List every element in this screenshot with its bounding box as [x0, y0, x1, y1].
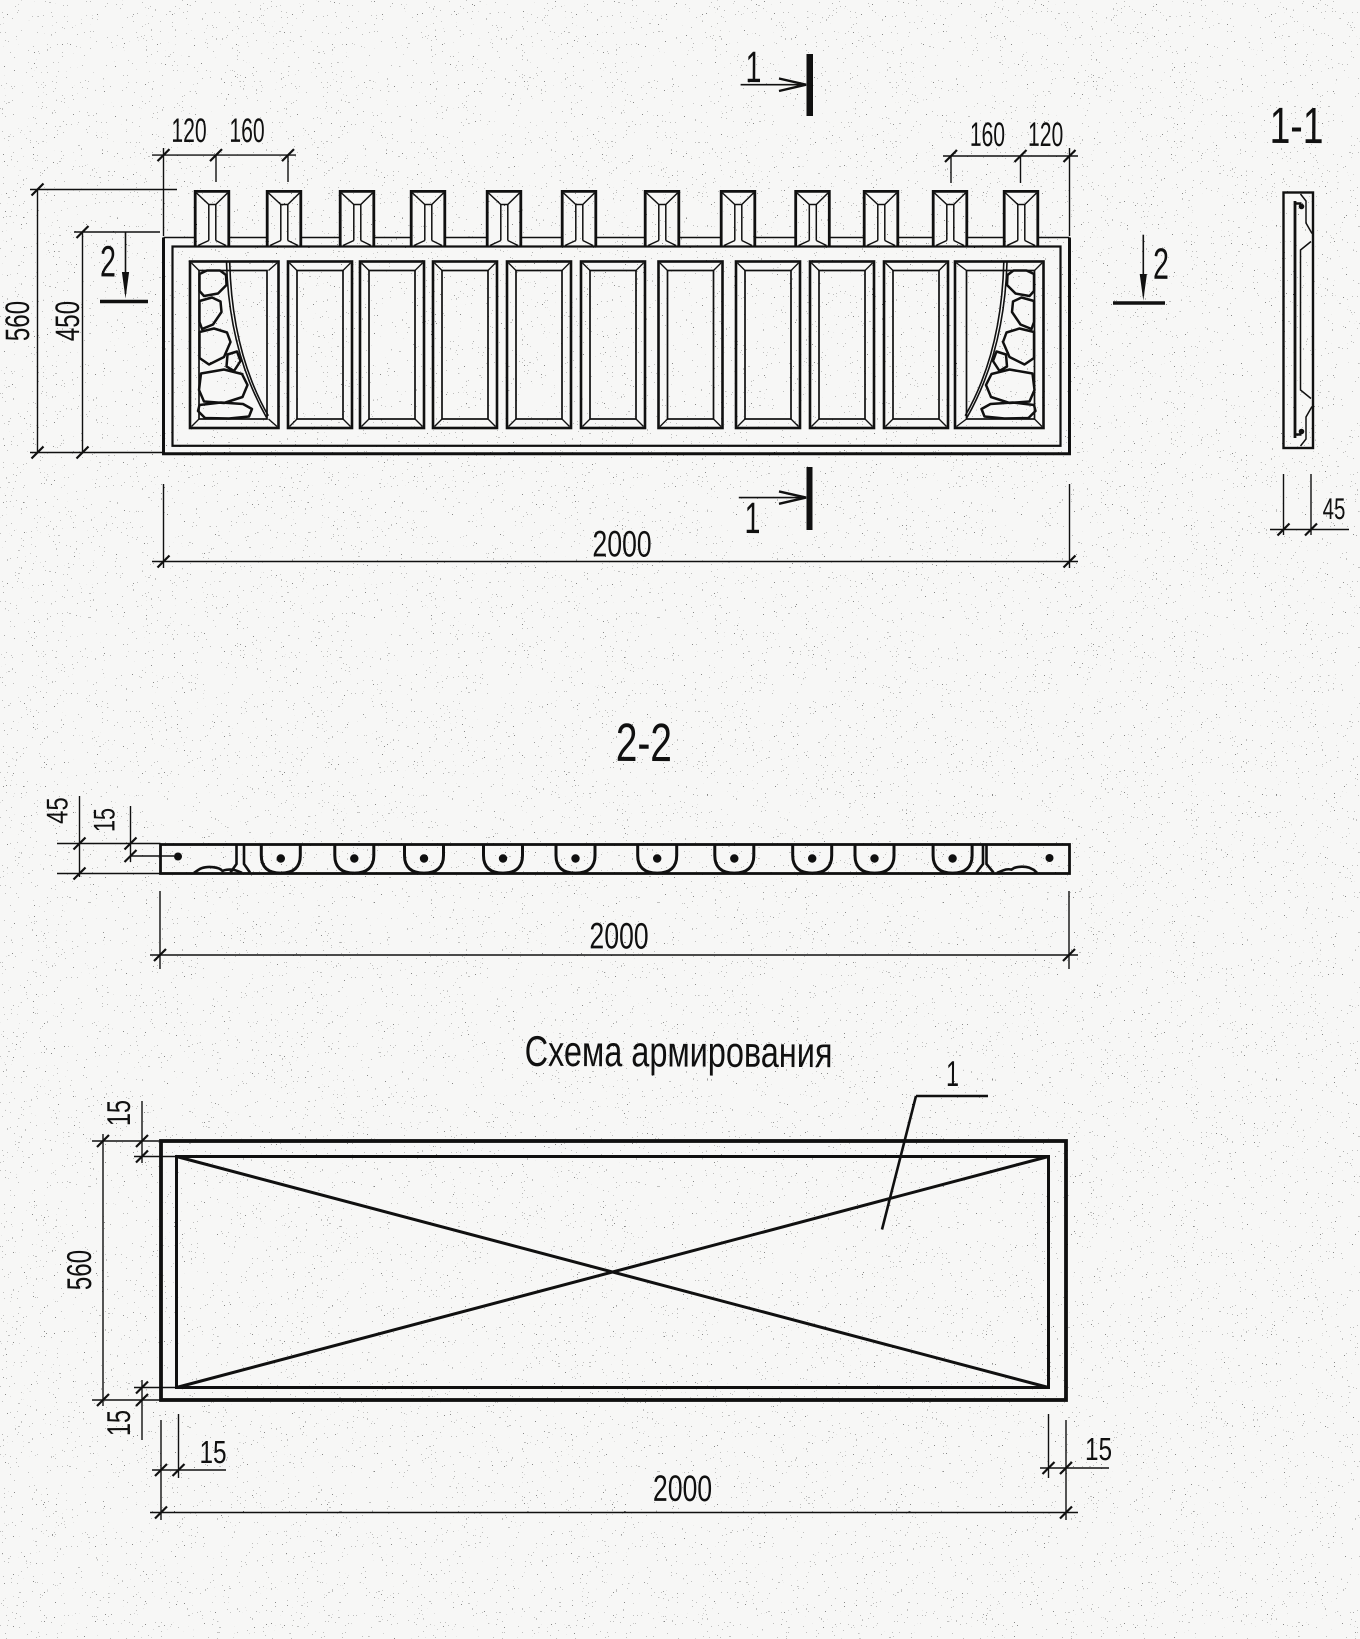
svg-text:15: 15	[1085, 1432, 1112, 1468]
svg-text:560: 560	[0, 301, 37, 341]
svg-text:2000: 2000	[592, 523, 651, 565]
svg-text:2: 2	[1153, 238, 1169, 288]
svg-text:2: 2	[100, 236, 116, 286]
svg-text:120: 120	[171, 111, 206, 150]
svg-text:2000: 2000	[589, 915, 648, 957]
svg-text:45: 45	[1323, 493, 1346, 526]
svg-text:2000: 2000	[653, 1468, 712, 1510]
svg-text:15: 15	[101, 1100, 138, 1126]
svg-text:15: 15	[101, 1410, 138, 1436]
svg-text:15: 15	[87, 808, 122, 832]
svg-text:1: 1	[746, 42, 762, 92]
svg-text:1: 1	[745, 493, 761, 543]
svg-text:160: 160	[229, 111, 264, 150]
svg-text:2-2: 2-2	[616, 712, 672, 773]
svg-text:160: 160	[970, 115, 1005, 154]
svg-text:1: 1	[946, 1055, 959, 1094]
svg-text:45: 45	[40, 797, 74, 824]
svg-text:450: 450	[49, 301, 87, 341]
svg-text:560: 560	[61, 1250, 99, 1290]
svg-text:15: 15	[199, 1435, 226, 1471]
svg-text:120: 120	[1028, 115, 1063, 154]
svg-text:Схема армирования: Схема армирования	[525, 1029, 833, 1078]
svg-text:1-1: 1-1	[1270, 98, 1324, 154]
